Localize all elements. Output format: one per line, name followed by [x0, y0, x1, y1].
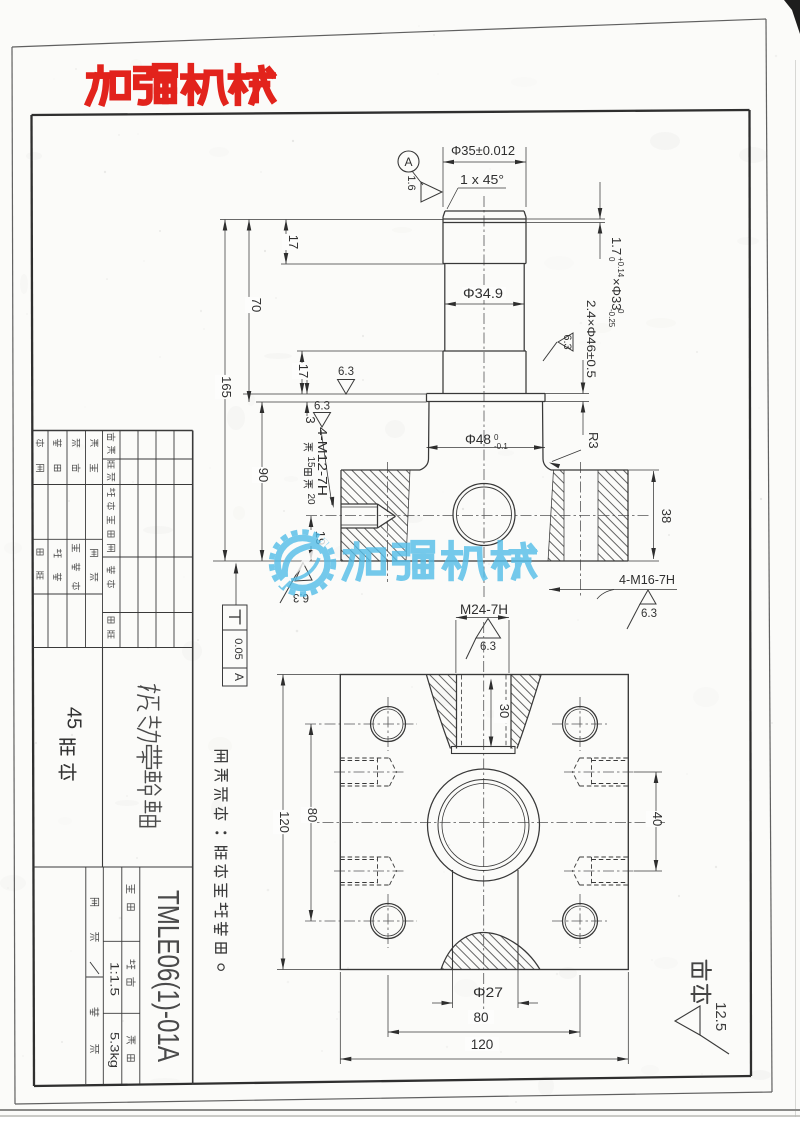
- svg-text:17: 17: [286, 235, 301, 249]
- svg-text:6.3: 6.3: [561, 334, 573, 349]
- svg-text:30: 30: [497, 704, 512, 718]
- svg-text:TMLE06(1)-01A: TMLE06(1)-01A: [151, 890, 186, 1062]
- svg-text:Φ48: Φ48: [465, 432, 491, 447]
- svg-text:38: 38: [659, 509, 674, 523]
- svg-text:165: 165: [219, 376, 234, 398]
- svg-text:1.7: 1.7: [609, 237, 624, 255]
- svg-text:5.3kg: 5.3kg: [108, 1032, 122, 1068]
- svg-text:6.3: 6.3: [314, 401, 330, 413]
- svg-text:M24-7H: M24-7H: [460, 602, 508, 617]
- svg-text:-0.25: -0.25: [607, 309, 616, 328]
- svg-text:Φ27: Φ27: [473, 985, 503, 1000]
- svg-text:Φ35±0.012: Φ35±0.012: [451, 143, 515, 158]
- svg-text:+0.14: +0.14: [616, 257, 625, 278]
- svg-text:90: 90: [256, 468, 271, 482]
- svg-text:20: 20: [305, 493, 316, 505]
- svg-text:70: 70: [249, 298, 264, 312]
- svg-text:0.05: 0.05: [232, 638, 244, 659]
- svg-text:A: A: [232, 673, 246, 681]
- svg-text:1 x 45°: 1 x 45°: [460, 172, 504, 187]
- svg-text:6.3: 6.3: [480, 641, 496, 653]
- svg-text:2.4×Φ46±0.5: 2.4×Φ46±0.5: [584, 300, 598, 378]
- svg-text:3: 3: [303, 416, 318, 423]
- svg-text:80: 80: [305, 808, 320, 822]
- svg-text:6.3: 6.3: [338, 366, 354, 378]
- svg-text:120: 120: [471, 1037, 494, 1052]
- svg-text:6.3: 6.3: [641, 608, 657, 620]
- svg-text:0: 0: [607, 257, 616, 262]
- svg-text:40: 40: [650, 812, 665, 826]
- svg-text:12.5: 12.5: [712, 1002, 729, 1031]
- svg-text:Φ34.9: Φ34.9: [463, 286, 503, 301]
- svg-text:R3: R3: [586, 432, 601, 449]
- svg-text:80: 80: [473, 1010, 488, 1025]
- svg-text:1:1.5: 1:1.5: [108, 962, 122, 996]
- svg-text:-0.1: -0.1: [494, 442, 508, 451]
- svg-text:4-M16-7H: 4-M16-7H: [619, 573, 675, 587]
- svg-text:4-M12-7H: 4-M12-7H: [315, 427, 329, 496]
- svg-text:45: 45: [63, 707, 85, 729]
- svg-text:0: 0: [616, 309, 625, 314]
- svg-text:0: 0: [494, 433, 499, 442]
- svg-text:×Φ33: ×Φ33: [609, 278, 624, 310]
- svg-text:120: 120: [277, 811, 292, 833]
- svg-text:A: A: [404, 155, 412, 169]
- svg-text:15: 15: [305, 456, 316, 468]
- svg-text:17: 17: [296, 364, 311, 378]
- svg-text:1.6: 1.6: [405, 175, 417, 190]
